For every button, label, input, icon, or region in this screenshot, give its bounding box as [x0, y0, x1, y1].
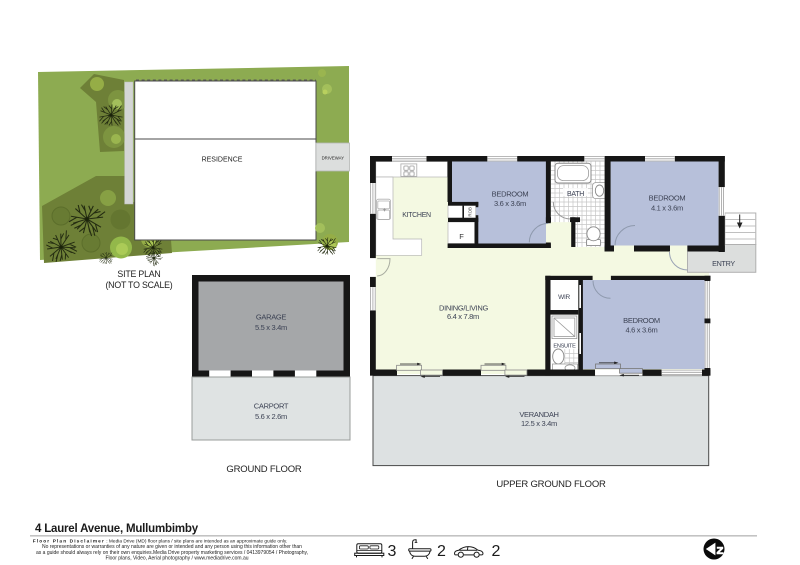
svg-text:GARAGE: GARAGE [256, 313, 287, 322]
svg-text:RESIDENCE: RESIDENCE [202, 157, 243, 164]
svg-text:BEDROOM: BEDROOM [492, 190, 529, 199]
svg-text:2: 2 [437, 543, 446, 560]
svg-text:ENSUITE: ENSUITE [553, 344, 576, 350]
svg-text:BEDROOM: BEDROOM [649, 194, 686, 203]
svg-text:CARPORT: CARPORT [254, 402, 289, 411]
svg-text:3.6 x 3.6m: 3.6 x 3.6m [494, 199, 526, 208]
svg-text:BEDROOM: BEDROOM [623, 316, 660, 325]
svg-text:(NOT TO SCALE): (NOT TO SCALE) [105, 280, 172, 290]
svg-text:KITCHEN: KITCHEN [402, 212, 431, 219]
svg-text:F: F [459, 232, 464, 241]
svg-text:VERANDAH: VERANDAH [519, 410, 558, 419]
svg-text:GROUND FLOOR: GROUND FLOOR [226, 464, 302, 475]
svg-text:DRIVEWAY: DRIVEWAY [322, 156, 345, 161]
svg-text:6.4 x 7.8m: 6.4 x 7.8m [447, 312, 479, 321]
svg-text:Floor plans, Video, Aerial ph: Floor plans, Video, Aerial photography /… [105, 556, 248, 562]
svg-text:ROB: ROB [468, 207, 473, 217]
svg-text:2: 2 [492, 543, 501, 560]
svg-text:4 Laurel Avenue, Mullumbimby: 4 Laurel Avenue, Mullumbimby [35, 523, 199, 535]
svg-text:SITE PLAN: SITE PLAN [117, 269, 160, 279]
svg-text:3: 3 [388, 543, 397, 560]
svg-text:ENTRY: ENTRY [712, 259, 735, 268]
svg-text:4.1 x 3.6m: 4.1 x 3.6m [651, 204, 683, 213]
svg-text:4.6 x 3.6m: 4.6 x 3.6m [625, 326, 657, 335]
svg-text:UPPER GROUND FLOOR: UPPER GROUND FLOOR [496, 479, 606, 490]
svg-text:12.5 x 3.4m: 12.5 x 3.4m [521, 419, 557, 428]
svg-text:WIR: WIR [558, 294, 570, 301]
svg-text:5.6 x 2.6m: 5.6 x 2.6m [255, 412, 287, 421]
svg-text:5.5 x 3.4m: 5.5 x 3.4m [255, 323, 287, 332]
svg-text:BATH: BATH [567, 191, 584, 198]
